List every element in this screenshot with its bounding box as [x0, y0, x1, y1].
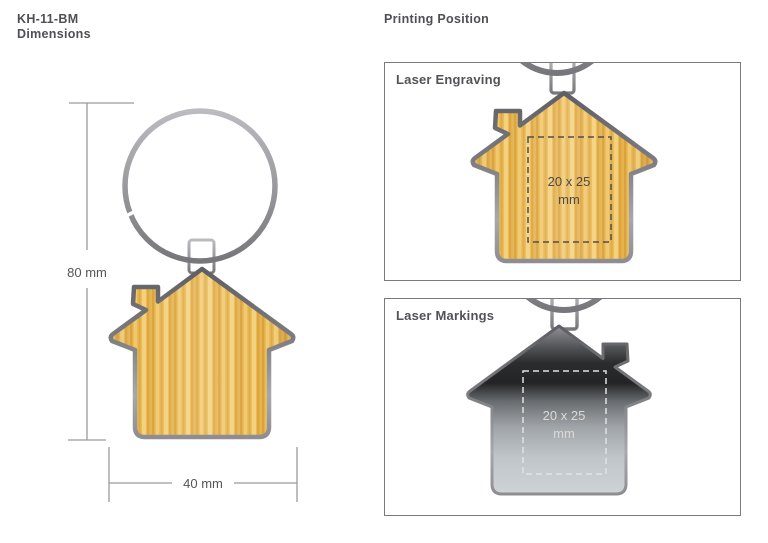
- dimension-drawing: 80 mm 40 mm: [0, 0, 360, 543]
- panel-label-laser-markings: Laser Markings: [396, 308, 494, 323]
- panel-label-laser-engraving: Laser Engraving: [396, 72, 501, 87]
- panel-laser-markings: 20 x 25 mm Laser Markings: [384, 298, 741, 516]
- house-keychain-front: [111, 269, 294, 437]
- print-area-size: 20 x 25: [548, 174, 591, 189]
- print-area-unit: mm: [553, 426, 575, 441]
- width-dimension-label: 40 mm: [183, 476, 223, 491]
- product-spec-sheet: KH-11-BM Dimensions Printing Position: [0, 0, 768, 543]
- keyring-icon: [508, 299, 620, 310]
- laser-engraving-photo: 20 x 25 mm: [385, 63, 738, 278]
- printing-position-title: Printing Position: [384, 12, 489, 27]
- width-dimension-line: [109, 447, 297, 502]
- laser-markings-photo: 20 x 25 mm: [385, 299, 738, 513]
- panel-laser-engraving: 20 x 25 mm Laser Engraving: [384, 62, 741, 281]
- height-dimension-label: 80 mm: [67, 265, 107, 280]
- connector-icon: [552, 299, 577, 329]
- print-area-size: 20 x 25: [543, 408, 586, 423]
- keyring-icon: [501, 63, 613, 73]
- connector-icon: [551, 63, 574, 93]
- print-area-unit: mm: [558, 192, 580, 207]
